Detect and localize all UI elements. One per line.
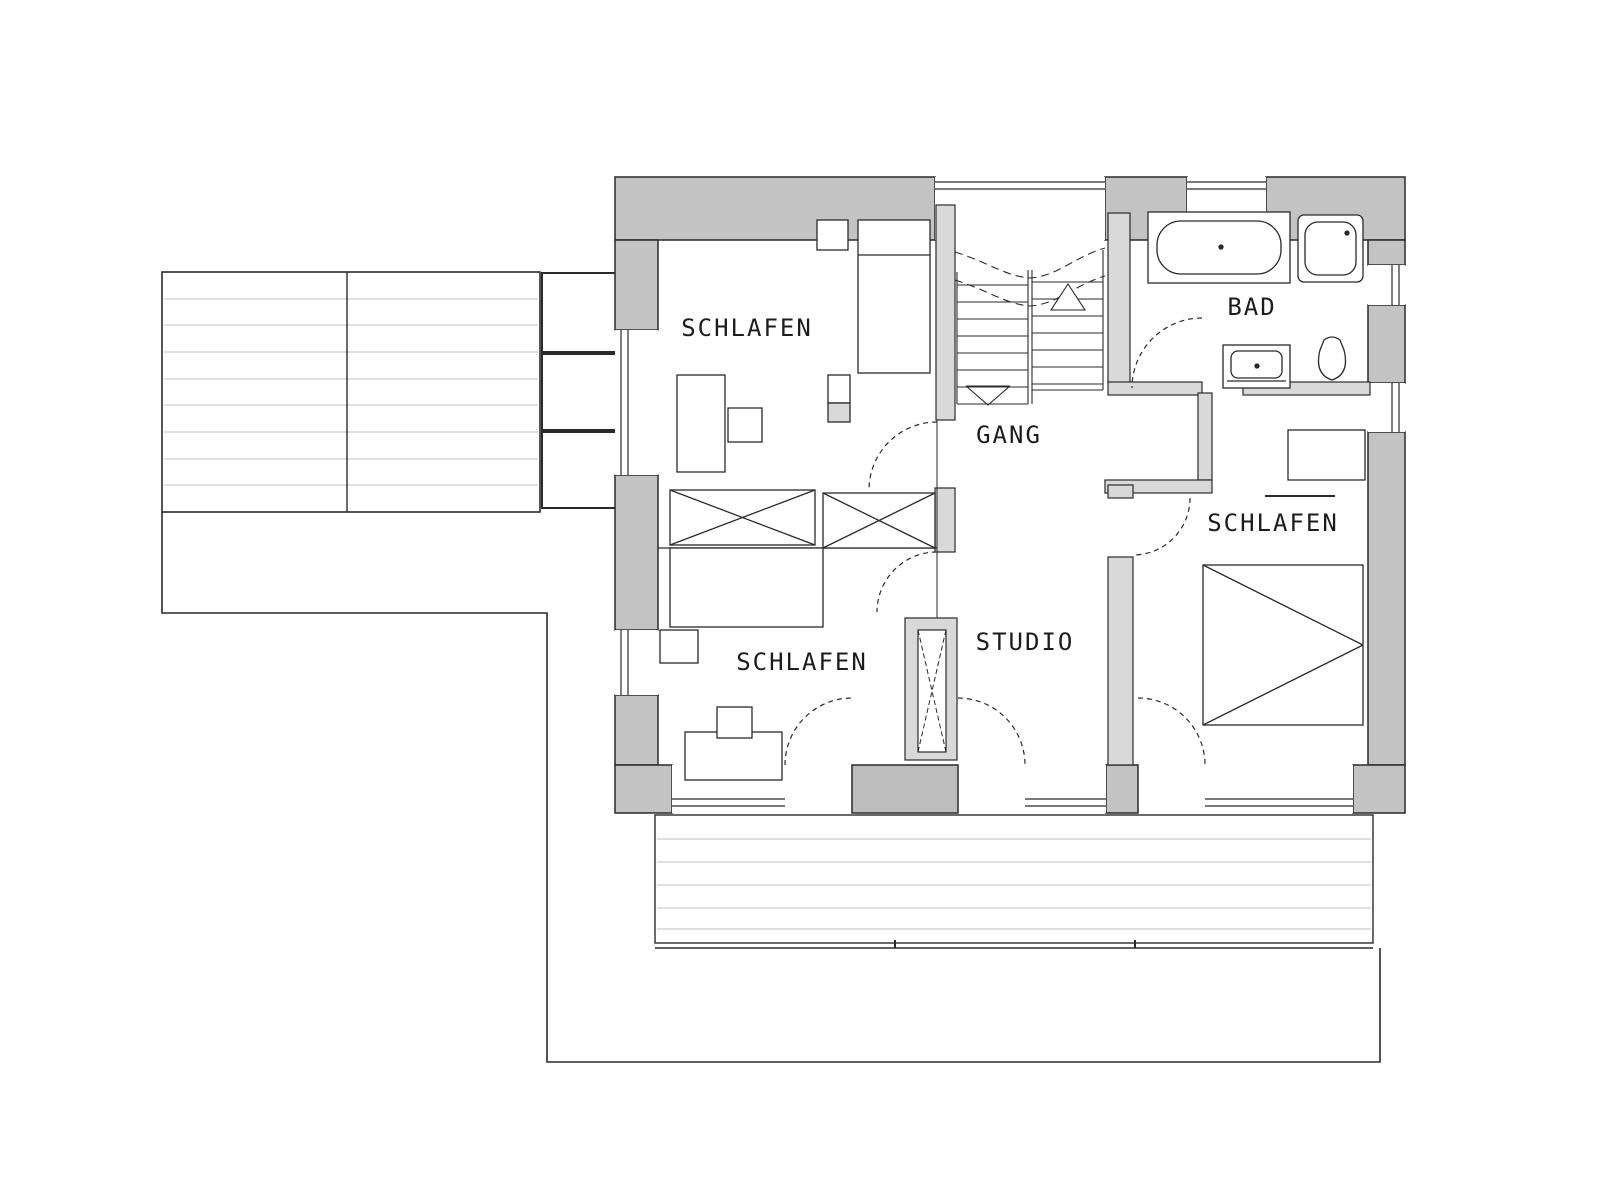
wall-bad-south-left xyxy=(1108,382,1202,395)
label-gang: GANG xyxy=(976,421,1042,449)
terrace-deck xyxy=(162,272,540,512)
balcony-deck xyxy=(655,815,1373,943)
wall-right-segment-3 xyxy=(1368,432,1405,765)
wall-left-segment-2 xyxy=(615,475,658,630)
nightstand-nw-base xyxy=(828,403,850,422)
wall-bottom-block-mid xyxy=(852,765,958,813)
desk-nw xyxy=(677,375,725,472)
shower-icon xyxy=(1298,215,1363,282)
label-schlafen-sw: SCHLAFEN xyxy=(736,648,868,676)
terrace-box-3 xyxy=(542,432,618,508)
label-schlafen-nw: SCHLAFEN xyxy=(681,314,813,342)
wardrobe-x-1 xyxy=(670,490,815,545)
terrace-box-2 xyxy=(542,354,618,430)
terrace xyxy=(162,272,618,512)
wall-stair-east xyxy=(1108,213,1130,383)
wall-left-segment-1 xyxy=(615,240,658,330)
stairs-up-arrow-icon xyxy=(1051,284,1085,310)
chair-nw xyxy=(728,408,762,442)
wall-studio-schlafen-top xyxy=(1108,485,1133,498)
stair-cut-line-1 xyxy=(955,248,1105,278)
wall-right-segment-1 xyxy=(1368,240,1405,265)
door-arc-schlafen-nw xyxy=(869,422,937,490)
door-arc-bad xyxy=(1132,318,1202,388)
floor-plan-page: SCHLAFEN BAD GANG SCHLAFEN SCHLAFEN STUD… xyxy=(0,0,1600,1198)
wall-left-segment-3 xyxy=(615,695,658,765)
wall-bottom-corner-left xyxy=(615,765,672,813)
wall-stair-west xyxy=(936,205,955,420)
stair-treads-right xyxy=(1032,250,1103,390)
label-studio: STUDIO xyxy=(976,628,1075,656)
floor-plan-drawing: SCHLAFEN BAD GANG SCHLAFEN SCHLAFEN STUD… xyxy=(0,0,1600,1198)
terrace-box-1 xyxy=(542,273,618,352)
wall-right-segment-2 xyxy=(1368,305,1405,383)
door-arc-schlafen-sw xyxy=(877,552,937,612)
window-top-stairs xyxy=(935,177,1105,240)
wall-bottom-block-right xyxy=(1106,765,1138,813)
chair-sw xyxy=(717,707,752,738)
bed-nw xyxy=(858,220,930,373)
bed-sw xyxy=(670,548,823,627)
door-arc-schlafen-e xyxy=(1133,498,1190,555)
tall-wardrobe xyxy=(905,618,957,760)
bathtub-icon xyxy=(1148,212,1290,283)
wall-studio-schlafen-bottom xyxy=(1108,557,1133,765)
washbasin-icon xyxy=(1223,345,1290,388)
nightstand-nw xyxy=(828,375,850,403)
wall-bottom-corner-right xyxy=(1353,765,1405,813)
balcony xyxy=(655,815,1373,948)
label-schlafen-e: SCHLAFEN xyxy=(1207,509,1339,537)
desk-sw xyxy=(685,732,782,780)
door-arc-balcony-sw xyxy=(785,698,852,765)
bed-e xyxy=(1203,565,1363,725)
label-bad: BAD xyxy=(1227,293,1276,321)
door-arc-balcony-e xyxy=(1138,698,1205,765)
radiator-sw xyxy=(660,630,698,663)
wall-stub-wardrobe xyxy=(935,488,955,552)
wall-niche-pillar xyxy=(1198,393,1212,480)
door-arc-balcony-studio xyxy=(958,698,1025,765)
dresser-e xyxy=(1288,430,1365,480)
wardrobe-x-2 xyxy=(823,493,935,548)
closet-box-nw xyxy=(817,220,848,250)
stairs-down-arrow-icon xyxy=(966,386,1010,405)
stair-treads-left xyxy=(957,272,1028,404)
stairs xyxy=(955,248,1105,405)
toilet-icon xyxy=(1319,337,1346,380)
